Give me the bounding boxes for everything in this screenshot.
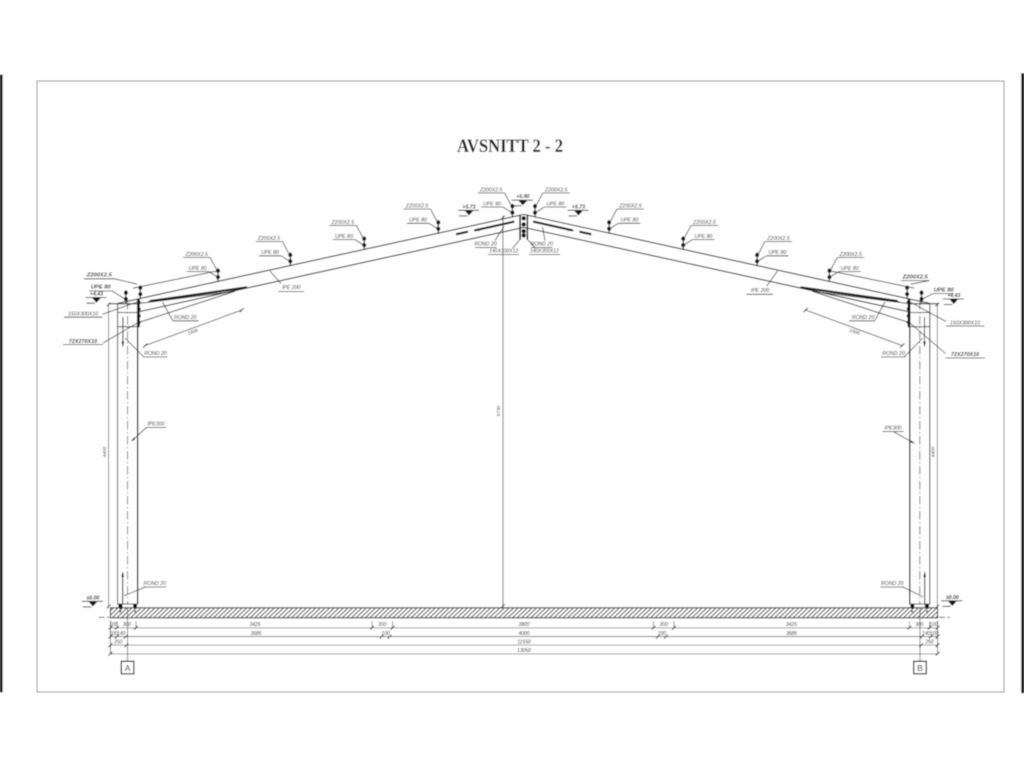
svg-text:300: 300 [660,622,669,628]
svg-text:100: 100 [381,631,390,637]
svg-text:+5.90: +5.90 [516,194,529,200]
svg-text:13050: 13050 [517,648,531,654]
svg-text:3425: 3425 [249,622,260,628]
svg-text:UPE 80: UPE 80 [620,218,638,224]
svg-text:72X270X10: 72X270X10 [69,339,97,345]
svg-text:Z200X2.5: Z200X2.5 [766,236,790,242]
svg-text:AVSNITT 2 - 2: AVSNITT 2 - 2 [457,136,563,157]
svg-text:Z200X2.5: Z200X2.5 [544,187,568,193]
svg-text:IPE300: IPE300 [147,421,164,427]
svg-text:UPE 80: UPE 80 [768,250,786,256]
svg-text:IPE 200: IPE 200 [282,285,301,291]
svg-text:Z200X2.5: Z200X2.5 [257,236,281,242]
svg-text:150X300X10: 150X300X10 [950,320,980,326]
svg-text:100: 100 [109,622,118,628]
svg-text:UPE 80: UPE 80 [695,234,713,240]
svg-text:ROND 20: ROND 20 [474,241,497,247]
svg-text:Z200X2.5: Z200X2.5 [479,187,503,193]
svg-text:ROND 20: ROND 20 [144,581,167,587]
svg-text:250: 250 [924,640,934,646]
svg-text:300: 300 [915,622,924,628]
svg-text:150X300X10: 150X300X10 [68,312,98,318]
svg-text:+4.43: +4.43 [90,292,103,298]
svg-text:140X300X12: 140X300X12 [530,248,559,254]
svg-text:+5.73: +5.73 [462,204,475,210]
svg-text:UPE 80: UPE 80 [483,202,501,208]
svg-text:B: B [917,663,923,673]
svg-text:UPE 80: UPE 80 [91,285,112,291]
svg-text:300: 300 [378,622,387,628]
svg-text:+5.73: +5.73 [572,204,585,210]
svg-text:±0.00: ±0.00 [86,595,99,601]
svg-text:Z200X2.5: Z200X2.5 [86,272,113,278]
svg-text:Z200X2.5: Z200X2.5 [331,220,355,226]
svg-text:3800: 3800 [518,622,529,628]
svg-text:Z200X2.5: Z200X2.5 [838,252,862,258]
svg-text:IPE300: IPE300 [884,425,901,431]
svg-text:4000: 4000 [518,631,529,637]
svg-text:11550: 11550 [517,640,531,646]
svg-text:ROND 20: ROND 20 [852,315,875,321]
svg-text:UPE 80: UPE 80 [261,250,279,256]
svg-text:Z200X2.5: Z200X2.5 [692,220,716,226]
svg-text:3425: 3425 [786,622,797,628]
svg-text:Z200X2.5: Z200X2.5 [618,204,642,210]
svg-text:ROND 20: ROND 20 [881,581,904,587]
svg-text:250: 250 [113,640,123,646]
svg-text:UPE 80: UPE 80 [189,266,207,272]
svg-text:100: 100 [658,631,667,637]
svg-text:Z200X2.5: Z200X2.5 [184,252,208,258]
svg-text:72X270X10: 72X270X10 [951,352,979,358]
svg-text:3685: 3685 [786,631,797,637]
svg-text:3685: 3685 [250,631,261,637]
svg-text:ROND 20: ROND 20 [144,351,167,357]
svg-text:5730: 5730 [496,405,502,416]
svg-text:UPE 80: UPE 80 [335,234,353,240]
svg-text:Z200X2.5: Z200X2.5 [902,274,929,280]
svg-text:100: 100 [930,631,939,637]
svg-text:UPE 80: UPE 80 [409,218,427,224]
svg-text:140X300X12: 140X300X12 [489,248,518,254]
svg-text:IPE 200: IPE 200 [751,288,770,294]
svg-text:100: 100 [929,622,938,628]
svg-text:UPE 80: UPE 80 [546,202,564,208]
svg-text:±0.00: ±0.00 [946,595,959,601]
svg-text:ROND 20: ROND 20 [882,351,905,357]
svg-text:4400: 4400 [931,446,937,457]
svg-text:ROND 20: ROND 20 [174,315,197,321]
svg-text:300: 300 [123,622,132,628]
svg-text:A: A [125,663,131,673]
svg-text:Z200X2.5: Z200X2.5 [405,204,429,210]
svg-text:+4.43: +4.43 [947,293,960,299]
svg-text:UPE 80: UPE 80 [841,266,859,272]
svg-text:4400: 4400 [102,446,108,457]
svg-text:140: 140 [117,631,126,637]
